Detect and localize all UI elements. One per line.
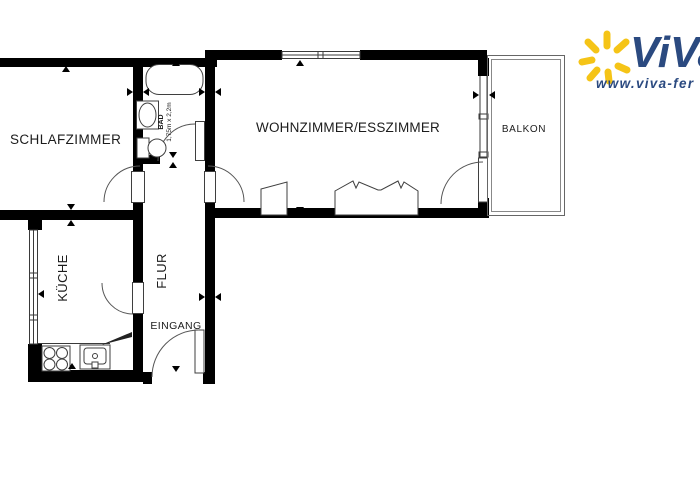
room-label-bad: BAD 1,75m x 2,2m xyxy=(158,94,176,150)
bathroom-sink xyxy=(137,101,159,129)
room-label-kueche: KÜCHE xyxy=(56,248,72,308)
kitchen-window xyxy=(30,230,38,344)
balcony-door-arc xyxy=(441,162,483,204)
room-label-schlafzimmer: SCHLAFZIMMER xyxy=(10,133,118,148)
room-label-eingang: EINGANG xyxy=(146,321,206,333)
bathtub xyxy=(146,65,203,95)
room-label-wohnzimmer: WOHNZIMMER/ESSZIMMER xyxy=(256,121,428,136)
entrance-door xyxy=(152,330,204,377)
balcony-window-wall xyxy=(441,76,488,204)
room-label-balkon: BALKON xyxy=(494,124,554,135)
kitchen-counter xyxy=(38,332,132,345)
stove xyxy=(42,346,70,371)
armchair xyxy=(261,182,287,215)
kitchen-sink xyxy=(80,345,110,369)
walls xyxy=(0,50,489,384)
living-room-window xyxy=(282,52,360,59)
kitchen-door xyxy=(102,283,144,315)
balcony-outline xyxy=(488,56,565,216)
bad-dimensions: 1,75m x 2,2m xyxy=(166,94,173,150)
sofa xyxy=(335,181,418,215)
bedroom-door xyxy=(104,166,145,203)
living-room-door xyxy=(205,166,245,203)
room-label-flur: FLUR xyxy=(155,246,171,296)
floor-plan xyxy=(0,0,700,500)
bad-label: BAD xyxy=(158,94,166,150)
brand-url: www.viva-fer xyxy=(596,76,694,91)
brand-wordmark: ViVa xyxy=(630,28,700,78)
